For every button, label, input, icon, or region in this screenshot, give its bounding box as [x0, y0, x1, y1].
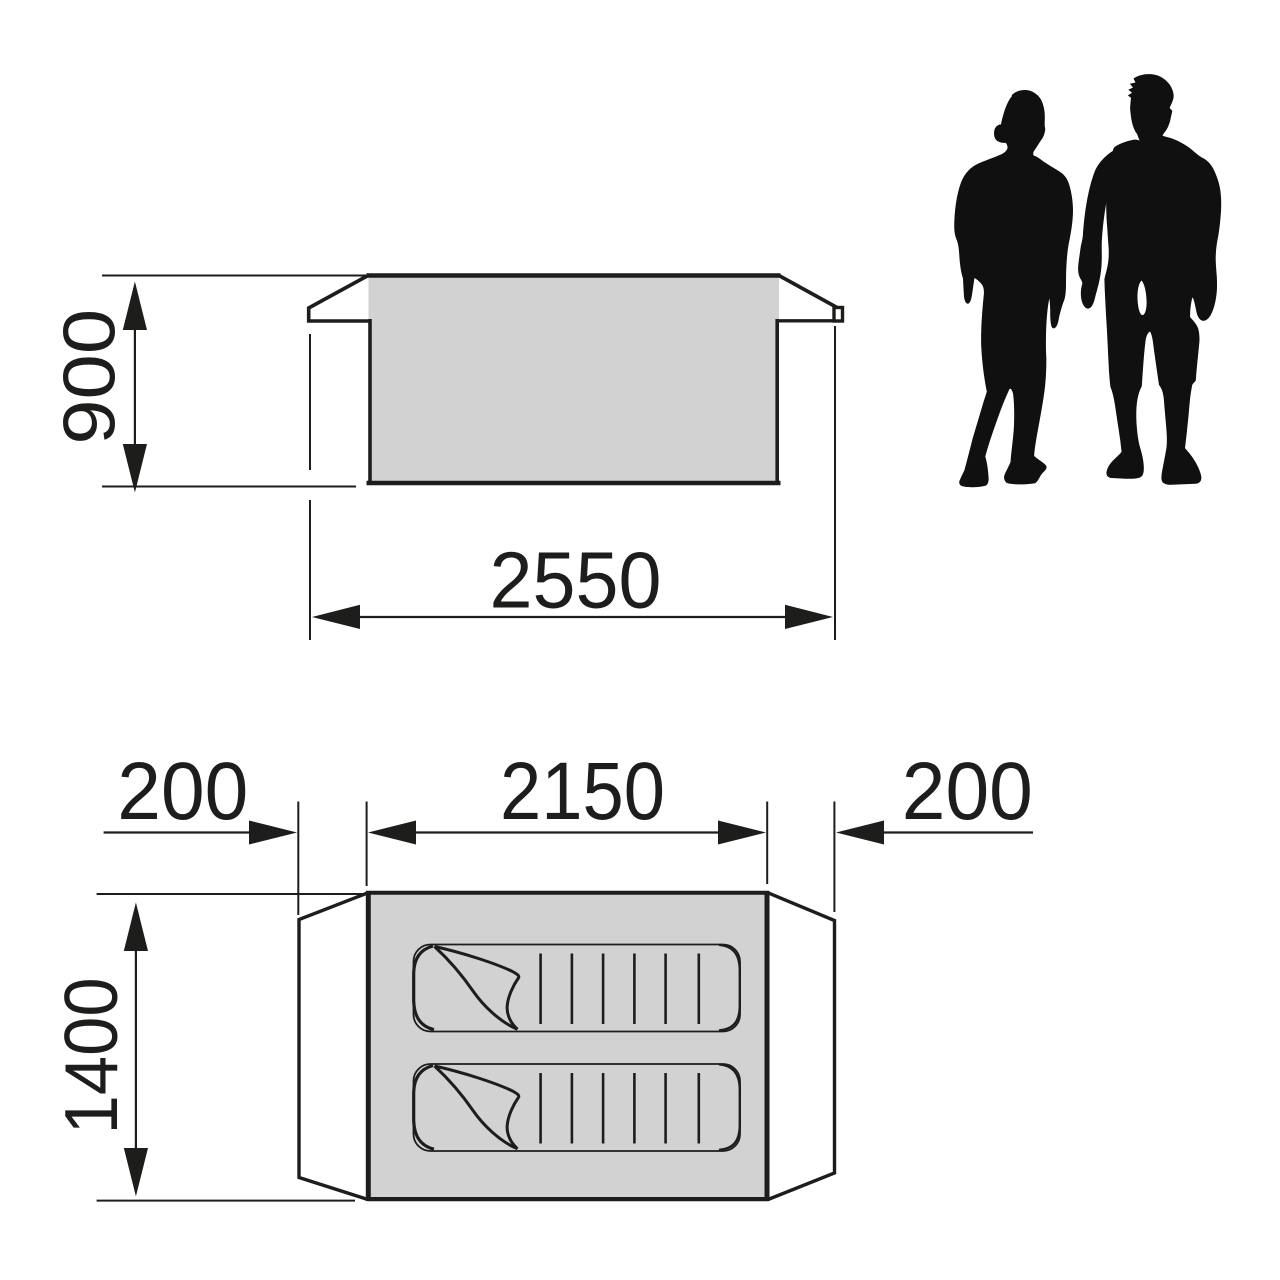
- svg-text:900: 900: [50, 309, 131, 445]
- svg-text:200: 200: [117, 746, 248, 837]
- svg-text:2150: 2150: [500, 746, 665, 837]
- svg-text:2550: 2550: [490, 536, 662, 625]
- svg-text:1400: 1400: [49, 977, 133, 1134]
- svg-text:200: 200: [902, 746, 1033, 837]
